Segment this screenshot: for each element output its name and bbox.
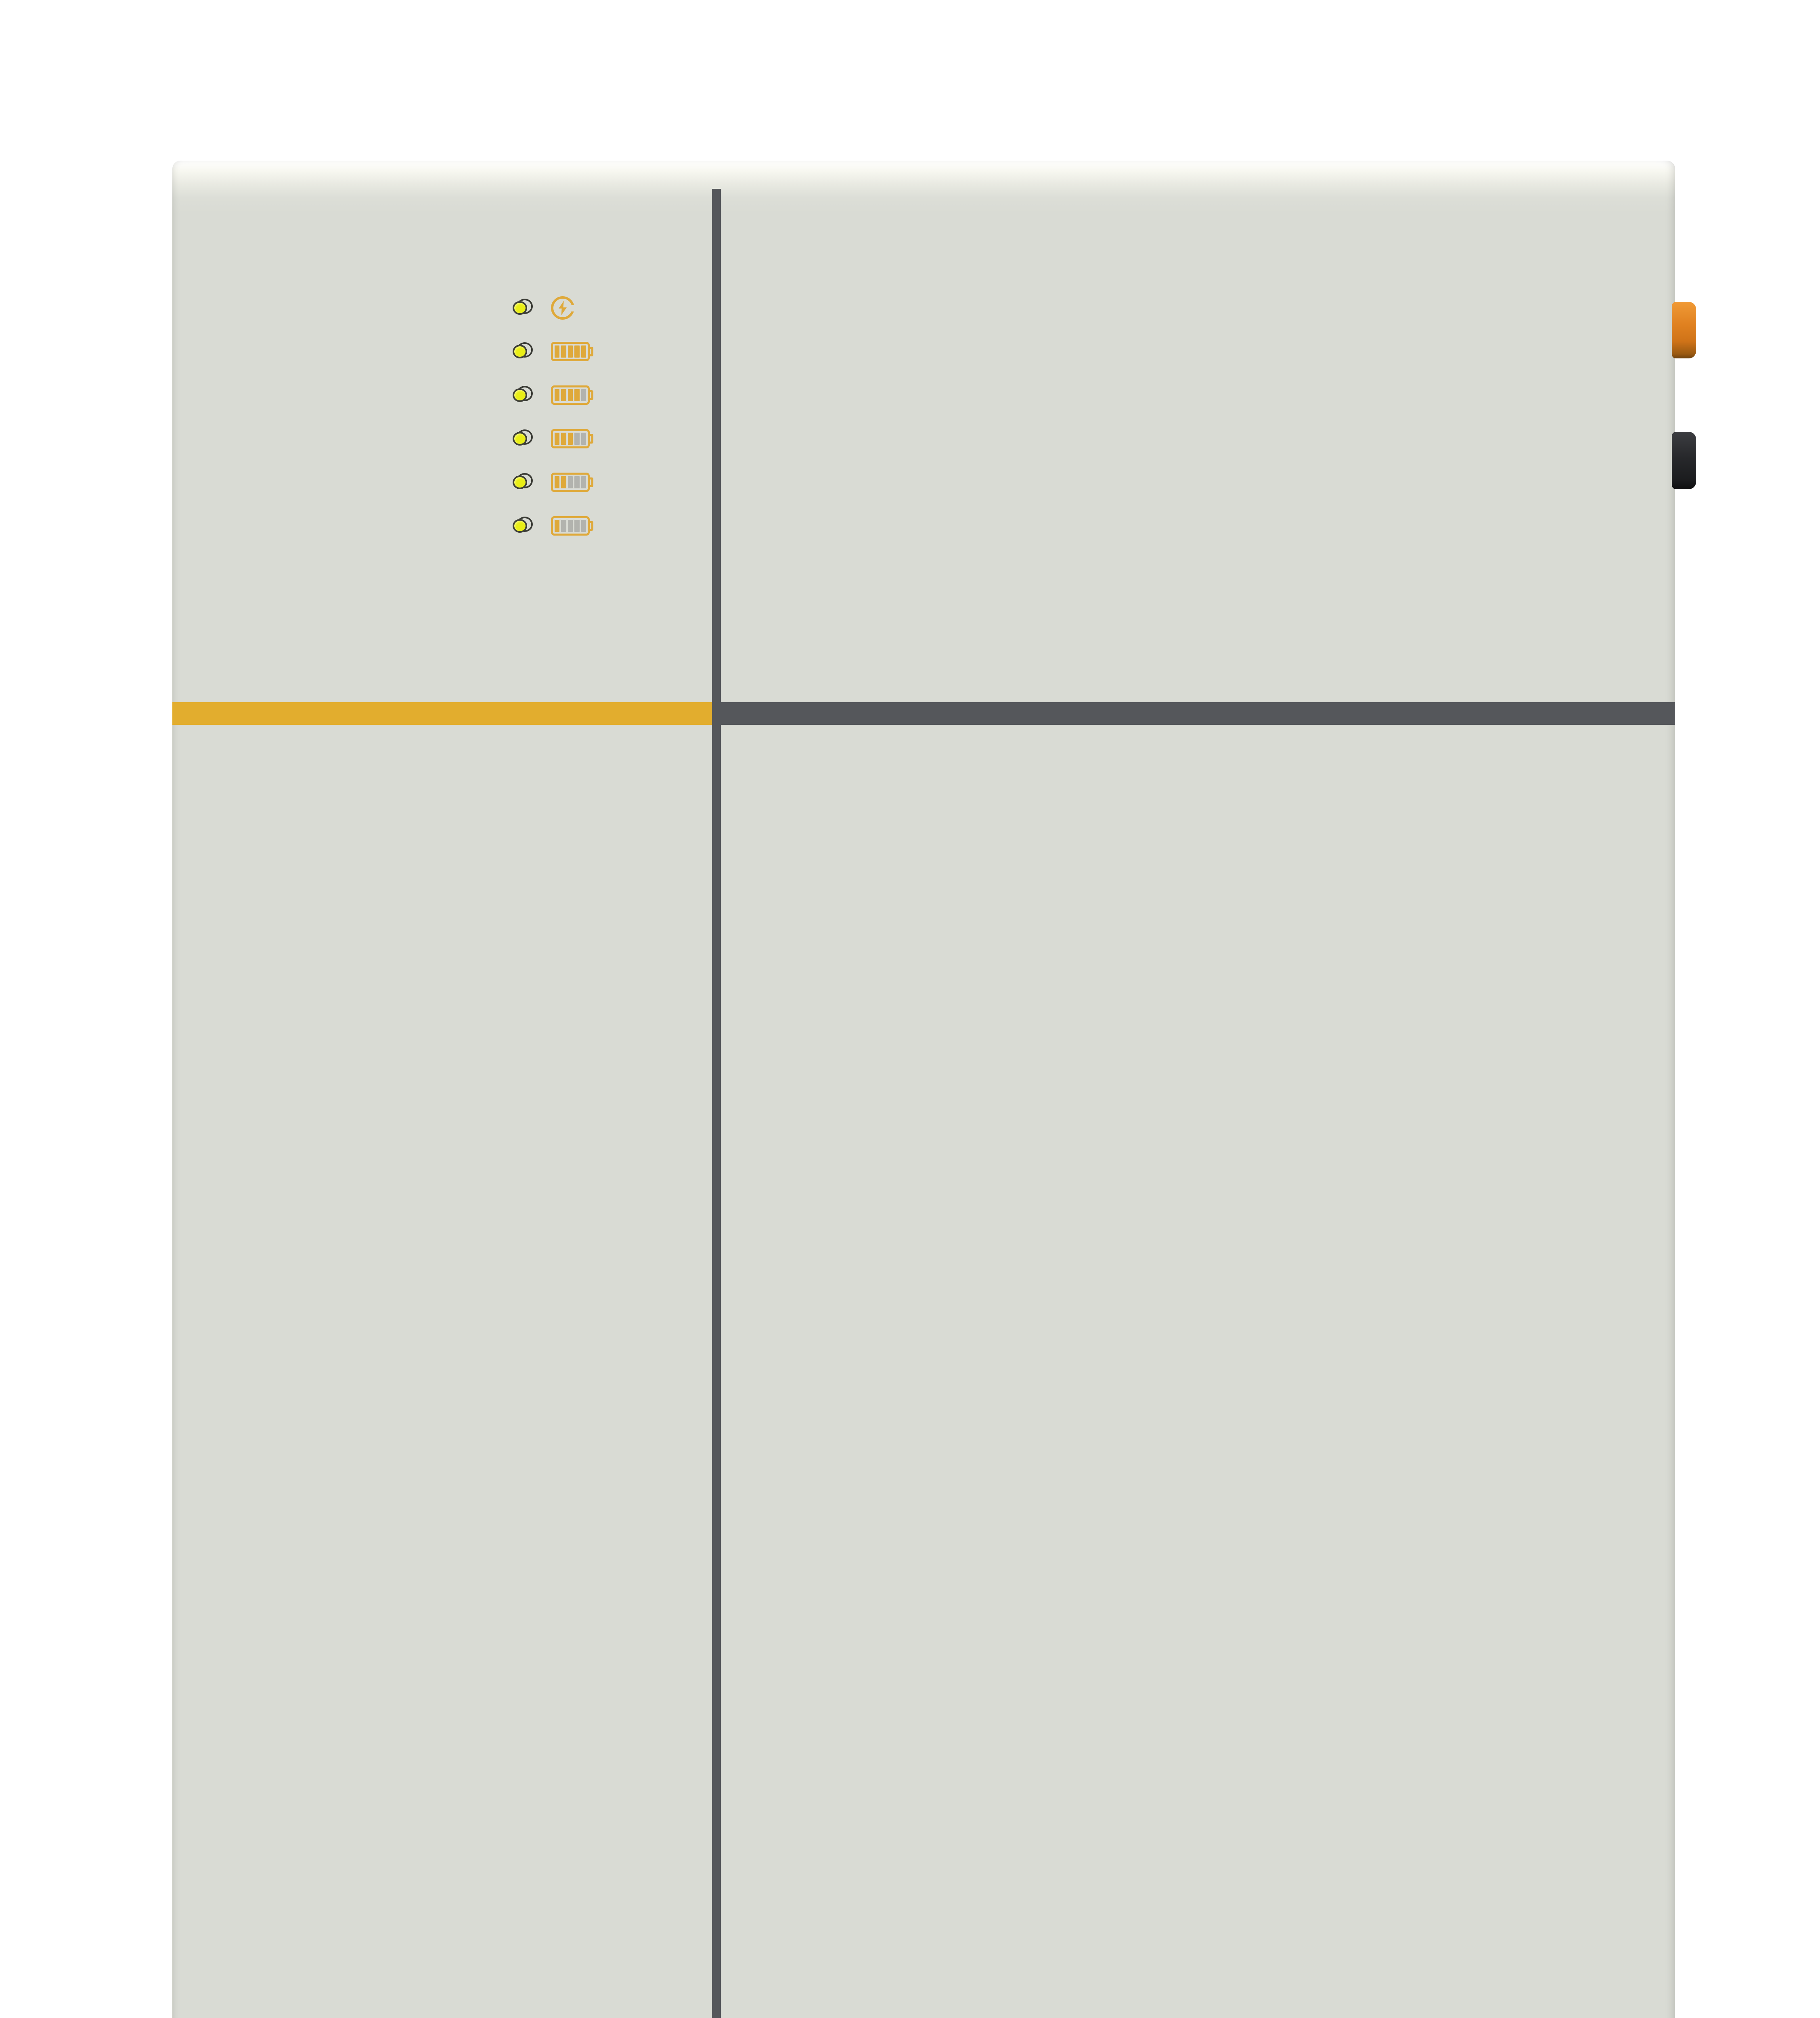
battery-gauge-4of5 — [551, 385, 590, 405]
battery-segment-filled — [561, 345, 566, 358]
status-led — [513, 473, 534, 492]
battery-gauge-5of5 — [551, 342, 590, 361]
battery-segment-filled — [568, 389, 573, 401]
accent-stripe-dark — [721, 702, 1675, 725]
led-dot-on — [513, 432, 527, 446]
battery-gauge-2of5 — [551, 473, 590, 492]
battery-segment-empty — [561, 520, 566, 532]
battery-gauge-3of5 — [551, 429, 590, 448]
battery-gauge-icon — [551, 516, 590, 536]
cabinet-front-panel: TRIPLE POWER — [172, 161, 1675, 2018]
black-connector — [1672, 432, 1696, 489]
led-row — [513, 296, 626, 320]
battery-segment-filled — [555, 389, 559, 401]
battery-gauge-icon — [551, 342, 590, 361]
product-render: TRIPLE POWER — [0, 0, 1820, 2018]
battery-gauge-icon — [551, 429, 590, 448]
battery-segment-filled — [568, 433, 573, 445]
battery-segment-filled — [561, 389, 566, 401]
battery-segment-filled — [574, 345, 579, 358]
battery-gauge-1of5 — [551, 516, 590, 536]
battery-segment-filled — [581, 345, 586, 358]
status-led — [513, 299, 534, 317]
led-dot-on — [513, 345, 527, 358]
battery-segment-filled — [555, 345, 559, 358]
bolt-icon — [558, 301, 568, 315]
led-dot-on — [513, 519, 527, 533]
charge-circle-icon — [551, 296, 574, 320]
battery-segment-empty — [568, 476, 573, 488]
circle-gap — [570, 305, 575, 312]
battery-segment-filled — [555, 520, 559, 532]
led-row — [513, 383, 626, 407]
led-row — [513, 470, 626, 494]
battery-segment-filled — [561, 476, 566, 488]
battery-segment-filled — [555, 476, 559, 488]
led-row — [513, 427, 626, 451]
battery-segment-filled — [574, 389, 579, 401]
status-led — [513, 429, 534, 448]
battery-segment-empty — [581, 389, 586, 401]
battery-gauge-icon — [551, 385, 590, 405]
led-dot-on — [513, 301, 527, 315]
status-led — [513, 386, 534, 404]
battery-segment-filled — [561, 433, 566, 445]
battery-segment-empty — [568, 520, 573, 532]
battery-gauge-icon — [551, 473, 590, 492]
accent-stripe-yellow — [172, 702, 712, 725]
status-led — [513, 517, 534, 535]
battery-segment-empty — [581, 520, 586, 532]
charge-circle-bolt-icon — [551, 296, 574, 320]
orange-connector — [1672, 302, 1696, 358]
battery-segment-empty — [574, 476, 579, 488]
led-dot-on — [513, 388, 527, 402]
battery-segment-empty — [581, 433, 586, 445]
battery-segment-empty — [581, 476, 586, 488]
led-row — [513, 339, 626, 364]
led-row — [513, 514, 626, 538]
battery-segment-filled — [555, 433, 559, 445]
battery-segment-empty — [574, 520, 579, 532]
battery-segment-empty — [574, 433, 579, 445]
panel-divider-line — [712, 189, 721, 2018]
battery-segment-filled — [568, 345, 573, 358]
status-led — [513, 342, 534, 361]
led-dot-on — [513, 475, 527, 489]
